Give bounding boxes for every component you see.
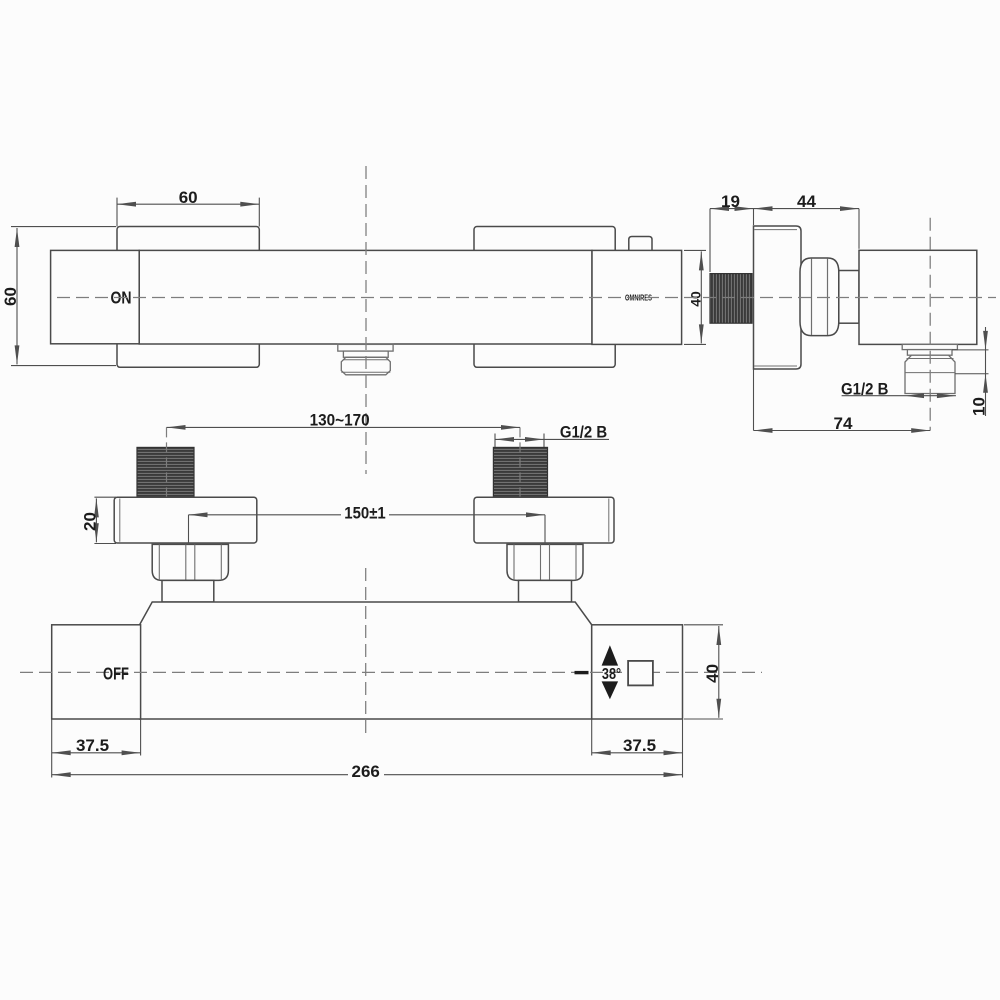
svg-text:20: 20: [81, 512, 100, 531]
svg-text:37.5: 37.5: [76, 736, 109, 755]
svg-text:74: 74: [834, 414, 853, 433]
svg-text:150±1: 150±1: [344, 504, 386, 522]
svg-text:G1/2 B: G1/2 B: [841, 380, 888, 398]
svg-text:OFF: OFF: [103, 665, 129, 685]
svg-text:10: 10: [970, 397, 989, 416]
svg-text:19: 19: [721, 192, 740, 211]
svg-text:266: 266: [352, 762, 380, 781]
svg-text:40: 40: [703, 664, 722, 683]
svg-text:38°: 38°: [602, 666, 622, 683]
svg-text:60: 60: [1, 287, 20, 306]
svg-text:40: 40: [687, 291, 703, 307]
svg-text:37.5: 37.5: [623, 736, 656, 755]
svg-text:60: 60: [179, 188, 198, 207]
svg-text:44: 44: [797, 192, 816, 211]
svg-text:G1/2 B: G1/2 B: [560, 424, 607, 442]
svg-text:OMNIRES: OMNIRES: [625, 295, 652, 303]
svg-text:130~170: 130~170: [310, 411, 370, 430]
